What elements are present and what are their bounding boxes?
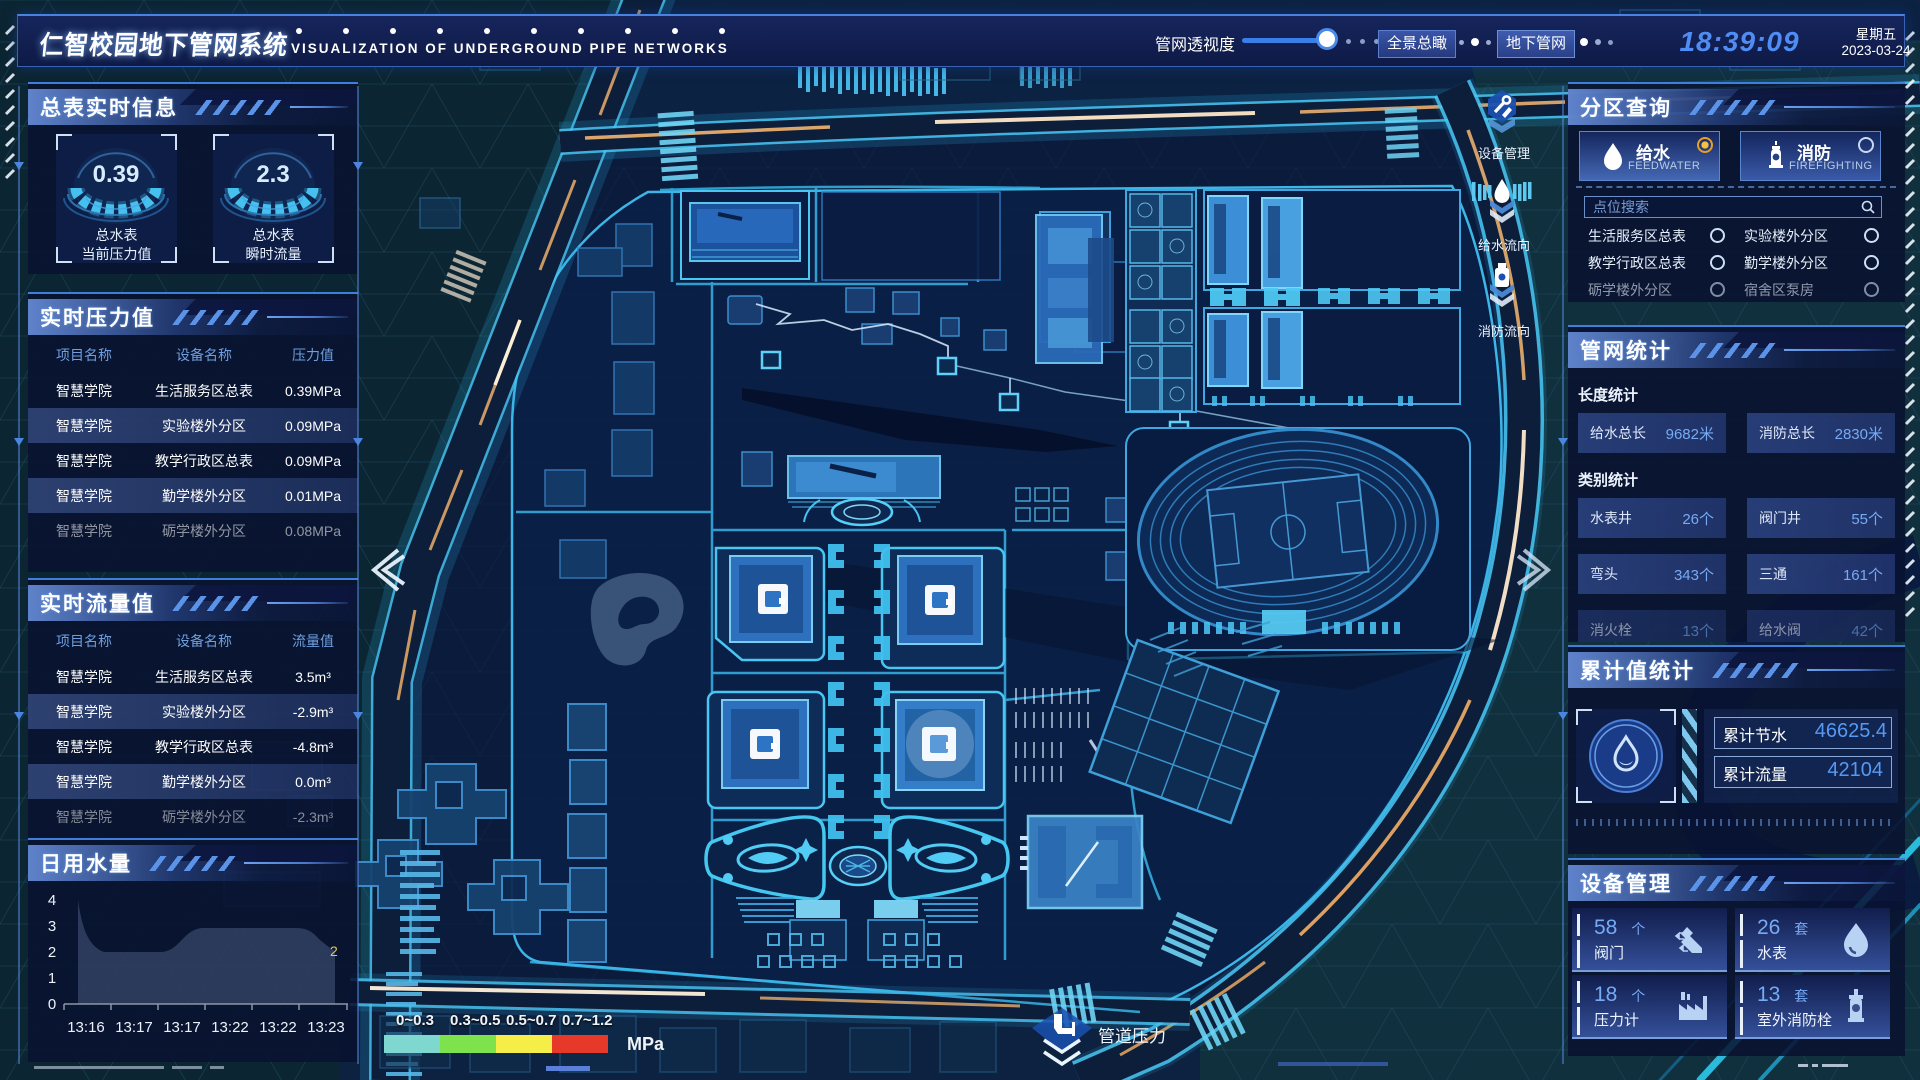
svg-text:1: 1 (48, 970, 56, 987)
svg-text:2: 2 (48, 944, 56, 961)
svg-text:3: 3 (48, 918, 56, 935)
svg-text:0: 0 (48, 996, 56, 1013)
svg-text:13:17: 13:17 (115, 1019, 153, 1036)
svg-text:13:22: 13:22 (211, 1019, 249, 1036)
svg-text:13:17: 13:17 (163, 1019, 201, 1036)
svg-text:4: 4 (48, 892, 56, 909)
svg-text:设备管理: 设备管理 (1478, 146, 1530, 161)
svg-text:2.3: 2.3 (256, 161, 289, 188)
svg-text:消防流向: 消防流向 (1478, 324, 1530, 339)
svg-text:13:23: 13:23 (307, 1019, 345, 1036)
svg-text:给水流向: 给水流向 (1478, 238, 1530, 253)
svg-text:管道压力: 管道压力 (1098, 1027, 1166, 1046)
svg-text:0.39: 0.39 (93, 161, 140, 188)
svg-text:13:16: 13:16 (67, 1019, 105, 1036)
svg-text:13:22: 13:22 (259, 1019, 297, 1036)
svg-text:2: 2 (330, 943, 338, 959)
